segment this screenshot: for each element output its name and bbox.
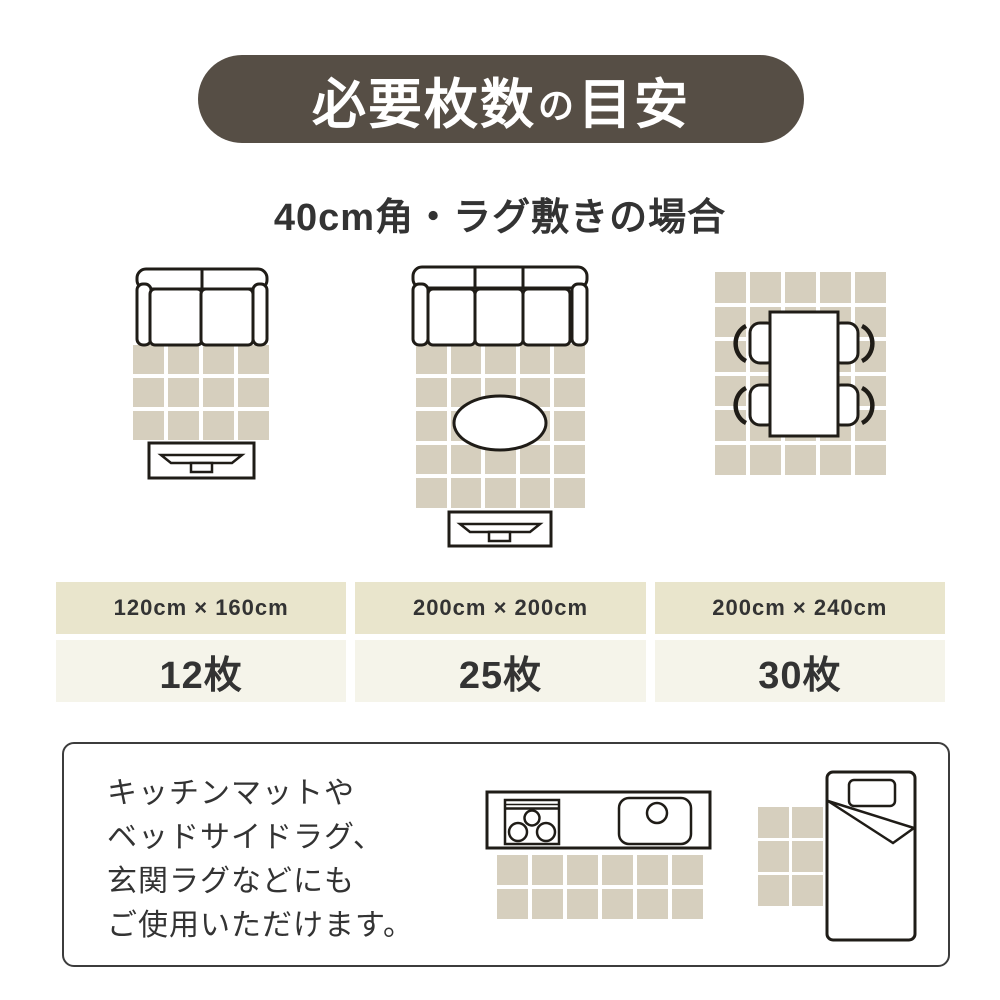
note-line: キッチンマットや <box>107 772 414 816</box>
sofa-3seat-icon <box>413 267 587 345</box>
note-line: ご使用いただけます。 <box>107 904 414 948</box>
title-part-2: 目安 <box>578 60 690 139</box>
sofa-3seat-table-rug-tv-illustration <box>405 260 595 550</box>
sofa-2seat-icon <box>137 269 267 345</box>
count-label: 25枚 <box>355 640 645 702</box>
usage-note-box: キッチンマットや ベッドサイドラグ、 玄関ラグなどにも ご使用いただけます。 <box>62 742 950 967</box>
kitchen-mat-example <box>484 789 724 929</box>
title-part-1: 必要枚数 <box>312 60 536 139</box>
bedside-rug-example <box>747 757 927 957</box>
note-line: 玄関ラグなどにも <box>107 860 414 904</box>
sink-icon <box>619 798 691 844</box>
pillow-icon <box>849 780 895 806</box>
kitchen-counter-illustration <box>484 789 724 929</box>
count-label: 30枚 <box>655 640 945 702</box>
size-count-table: 120cm × 160cm 200cm × 200cm 200cm × 240c… <box>56 582 945 702</box>
dining-table-icon <box>770 312 838 436</box>
note-line: ベッドサイドラグ、 <box>107 816 414 860</box>
infographic-page: 必要枚数の目安 40cm角・ラグ敷きの場合 <box>0 0 1000 1000</box>
count-label: 12枚 <box>56 640 346 702</box>
layout-diagram-living-small <box>120 260 280 485</box>
layout-diagram-living-large <box>405 260 595 550</box>
oval-table-icon <box>454 396 546 450</box>
bed-icon <box>827 772 915 940</box>
tv-board-icon <box>449 512 551 546</box>
title-particle: の <box>536 77 578 129</box>
usage-note-text: キッチンマットや ベッドサイドラグ、 玄関ラグなどにも ご使用いただけます。 <box>107 772 414 948</box>
kitchen-counter-icon <box>487 792 710 848</box>
sofa-2seat-rug-tv-illustration <box>120 260 280 485</box>
size-label: 120cm × 160cm <box>56 582 346 634</box>
subtitle: 40cm角・ラグ敷きの場合 <box>0 186 1000 241</box>
size-label: 200cm × 240cm <box>655 582 945 634</box>
page-title: 必要枚数の目安 <box>198 55 804 143</box>
dining-table-chairs-illustration <box>705 260 895 480</box>
bed-illustration <box>747 757 927 957</box>
size-label: 200cm × 200cm <box>355 582 645 634</box>
layout-diagram-dining <box>705 260 895 480</box>
tv-board-icon <box>149 443 254 478</box>
stove-icon <box>505 800 559 844</box>
